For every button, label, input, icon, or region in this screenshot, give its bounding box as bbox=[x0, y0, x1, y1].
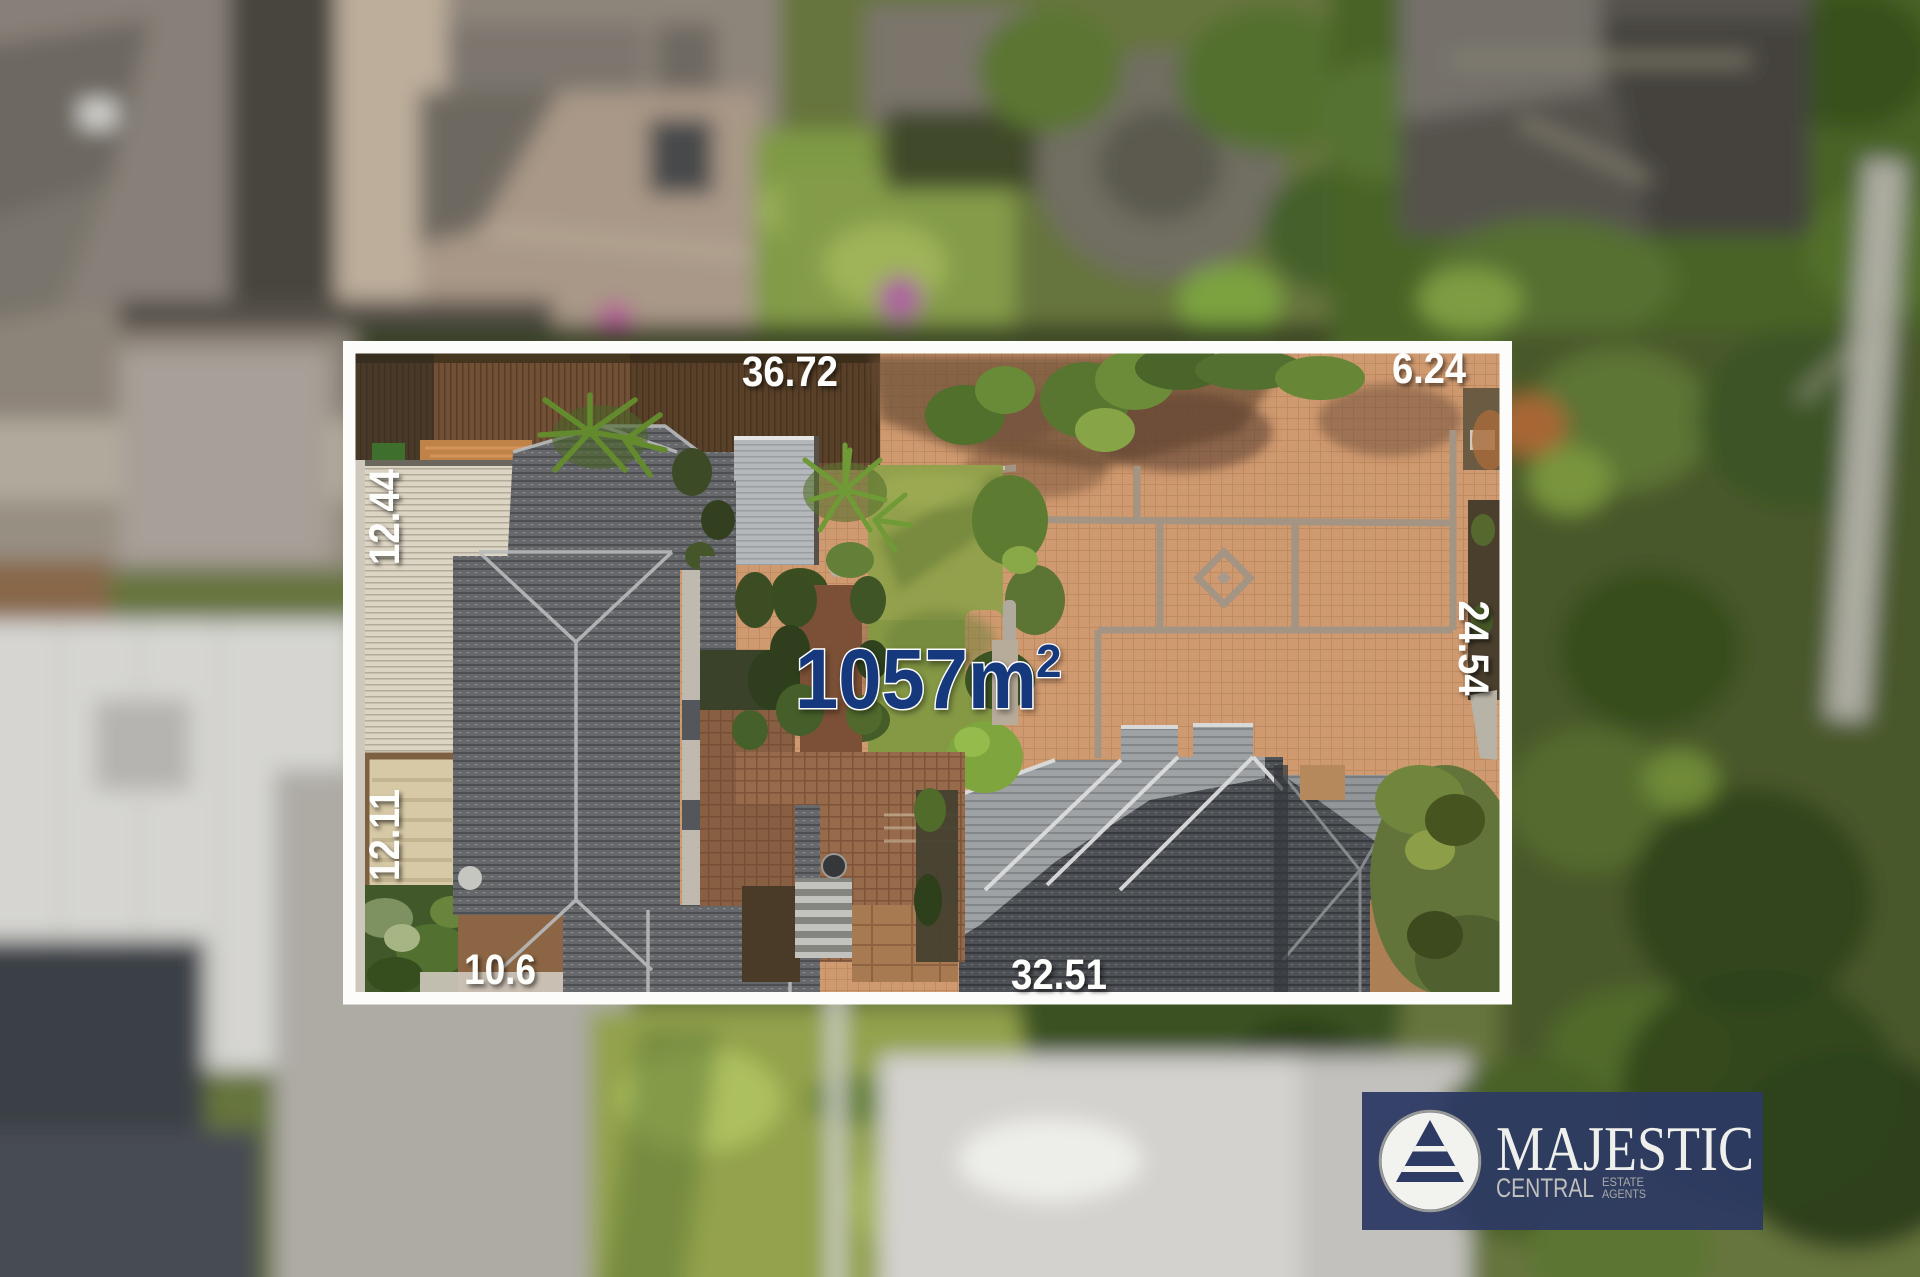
svg-text:AGENTS: AGENTS bbox=[1602, 1189, 1646, 1201]
svg-text:12.11: 12.11 bbox=[361, 789, 409, 881]
svg-text:6.24: 6.24 bbox=[1392, 345, 1466, 393]
svg-text:10.6: 10.6 bbox=[464, 946, 536, 994]
svg-text:36.72: 36.72 bbox=[742, 348, 838, 396]
svg-text:2: 2 bbox=[1036, 635, 1062, 687]
svg-text:12.44: 12.44 bbox=[361, 469, 409, 565]
svg-text:32.51: 32.51 bbox=[1011, 951, 1107, 999]
svg-text:1057m: 1057m bbox=[795, 632, 1037, 726]
svg-text:ESTATE: ESTATE bbox=[1602, 1177, 1644, 1189]
svg-text:CENTRAL: CENTRAL bbox=[1496, 1173, 1594, 1203]
svg-text:24.54: 24.54 bbox=[1449, 601, 1497, 696]
